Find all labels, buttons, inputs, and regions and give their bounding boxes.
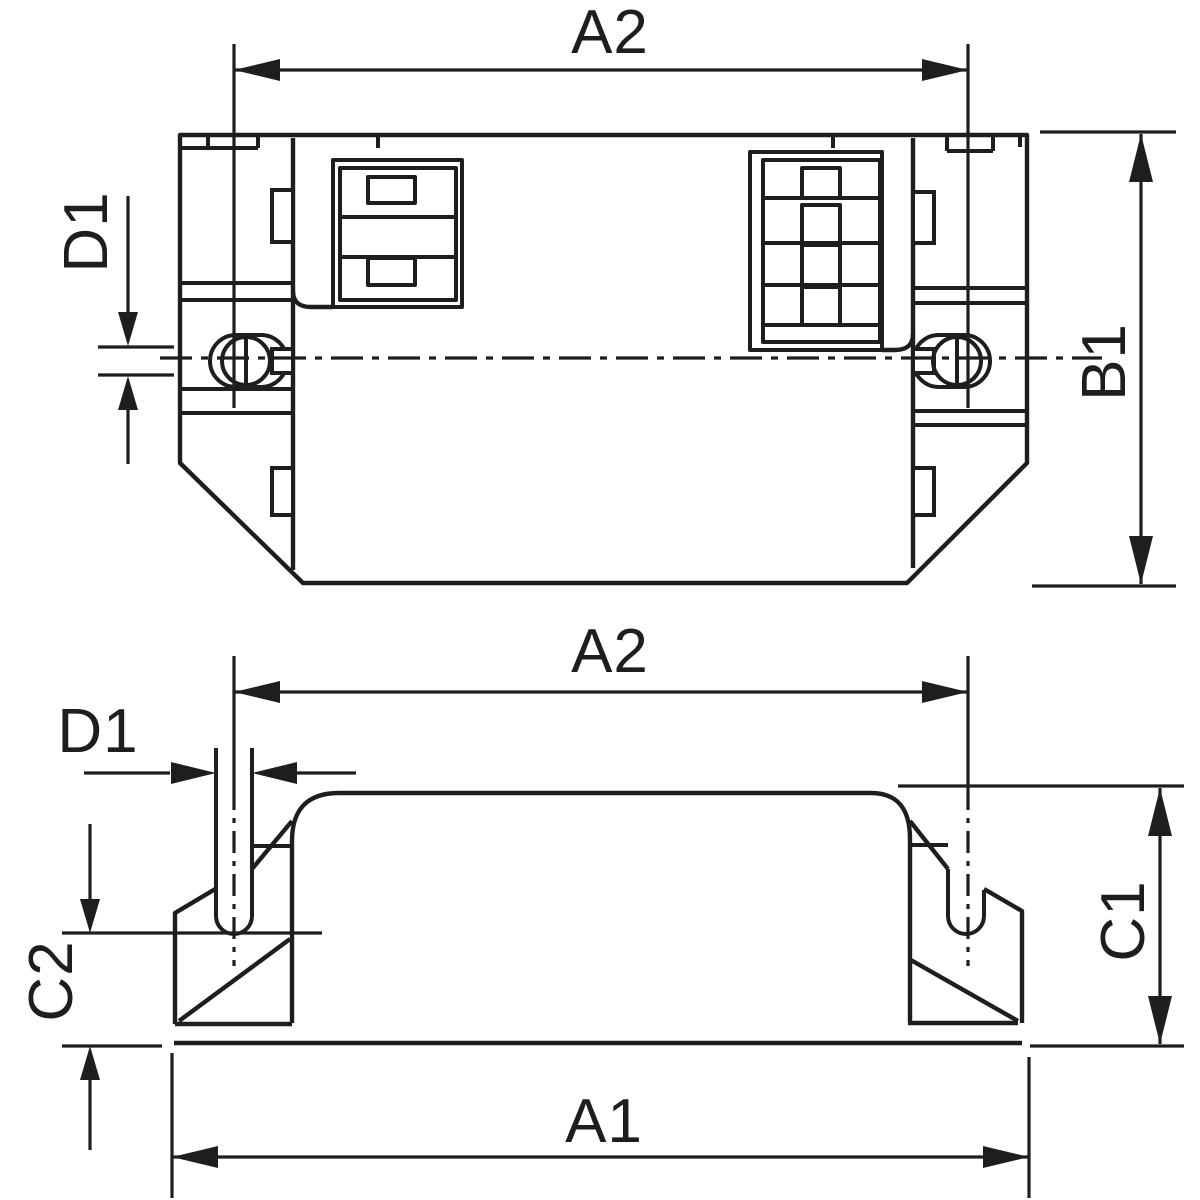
- dim-d1-top-ticks: [98, 347, 174, 375]
- drawing-page: A2 D1 B1: [0, 0, 1200, 1200]
- terminal-block-4pole-outer: [750, 152, 882, 350]
- dim-d1-top: D1: [52, 191, 174, 464]
- terminal-2pole-port-1: [368, 177, 415, 203]
- terminal-4pole-port-4: [802, 287, 840, 325]
- arrowhead-up: [1129, 134, 1153, 182]
- dim-c2: C2: [17, 824, 322, 1150]
- arrowhead-down: [118, 312, 138, 346]
- dim-label-b1: B1: [1070, 323, 1139, 401]
- terminal-4pole-port-3: [802, 245, 840, 285]
- arrowhead-left: [252, 762, 297, 784]
- flange-left-outline: [175, 888, 217, 1024]
- top-view: A2 D1 B1: [52, 0, 1176, 586]
- arrowhead-up: [1148, 788, 1172, 836]
- dim-a1: A1: [172, 1053, 1029, 1198]
- arrowhead-left: [234, 59, 280, 81]
- dim-a2-top-extensions: [234, 44, 968, 408]
- dim-a2-side: A2: [234, 617, 968, 703]
- terminal-4pole-port-1: [802, 168, 840, 198]
- dimension-drawing-canvas: A2 D1 B1: [0, 0, 1200, 1200]
- mounting-screw-left: [210, 335, 293, 387]
- side-body-profile: [292, 793, 910, 1023]
- terminal-block-4pole-inner: [763, 160, 880, 342]
- dim-label-a2-top: A2: [571, 0, 649, 67]
- side-view: A2 D1 C2 C1: [17, 617, 1184, 1198]
- inner-step-right: [882, 334, 913, 350]
- arrowhead-right: [922, 681, 968, 703]
- terminal-block-4pole: [750, 152, 882, 350]
- mounting-flange-right: [908, 821, 1022, 1023]
- arrowhead-right: [983, 1146, 1029, 1168]
- arrowhead-down: [1148, 996, 1172, 1044]
- slot-end-notch-right: [913, 349, 934, 373]
- notch-tab-lower-left: [272, 468, 293, 515]
- terminal-block-2pole-dividers: [340, 217, 456, 257]
- slot-end-notch-left: [272, 349, 293, 373]
- slot-right-arc: [948, 916, 984, 934]
- terminal-block-2pole: [333, 160, 462, 307]
- dim-label-a2-side: A2: [571, 617, 649, 686]
- dim-label-d1-top: D1: [52, 191, 121, 272]
- terminal-4pole-port-2: [802, 205, 840, 243]
- top-edge-notch-right: [947, 135, 993, 151]
- arrowhead-right: [922, 59, 968, 81]
- terminal-2pole-port-2: [368, 258, 415, 285]
- dim-label-c1: C1: [1089, 880, 1158, 961]
- inner-step-left: [293, 291, 333, 307]
- dim-label-d1-side: D1: [57, 697, 138, 766]
- arrowhead-right: [171, 762, 216, 784]
- arrowhead-up: [118, 376, 138, 410]
- dim-label-a1: A1: [565, 1087, 643, 1156]
- dim-d1-side: D1: [57, 697, 356, 784]
- arrowhead-left: [172, 1146, 218, 1168]
- arrowhead-up: [80, 1046, 100, 1080]
- slot-right-edges: [948, 869, 984, 916]
- notch-tab-upper-right: [913, 192, 934, 243]
- dim-c1: C1: [898, 786, 1184, 1046]
- arrowhead-down: [80, 899, 100, 933]
- notch-tab-upper-left: [272, 190, 293, 242]
- arrowhead-down: [1129, 536, 1153, 584]
- terminal-block-2pole-inner: [340, 168, 456, 300]
- arrowhead-left: [234, 681, 280, 703]
- flange-right-gusset: [909, 959, 1018, 1021]
- notch-tab-lower-right: [913, 468, 934, 515]
- dim-b1: B1: [1032, 132, 1176, 586]
- terminal-block-4pole-dividers: [763, 198, 880, 325]
- mounting-screw-right: [913, 335, 990, 387]
- dim-a2-top: A2: [234, 0, 968, 408]
- dim-label-c2: C2: [17, 940, 86, 1021]
